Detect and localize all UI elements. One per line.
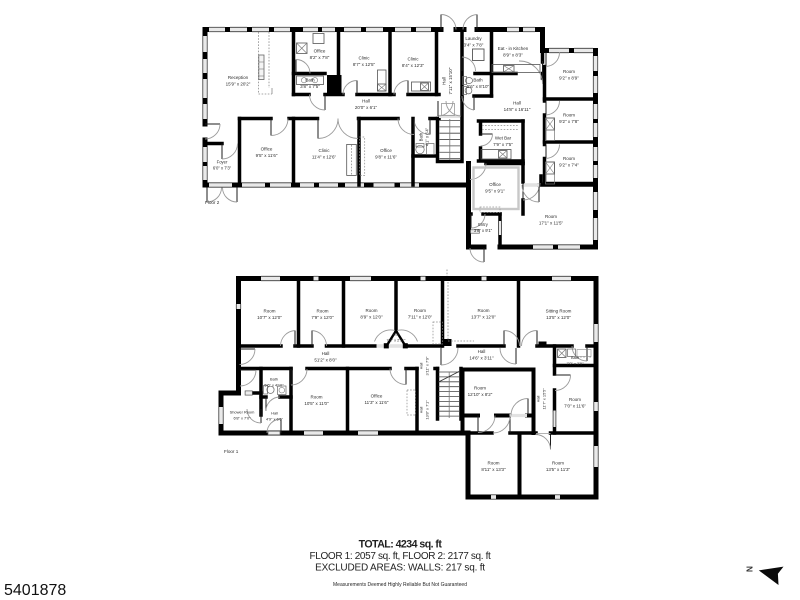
svg-text:Bath: Bath <box>418 132 423 141</box>
svg-text:13'7" x 12'0": 13'7" x 12'0" <box>471 314 496 319</box>
svg-text:Room: Room <box>414 308 426 313</box>
svg-text:Hall: Hall <box>478 349 486 354</box>
svg-text:5'6" x 4'10": 5'6" x 4'10" <box>264 382 284 387</box>
svg-text:9'2" x 8'9": 9'2" x 8'9" <box>559 75 579 80</box>
svg-text:7'9" x 12'0": 7'9" x 12'0" <box>311 315 334 320</box>
svg-text:17'1" x 11'5": 17'1" x 11'5" <box>539 220 564 225</box>
svg-text:8'9" x 12'0": 8'9" x 12'0" <box>360 314 383 319</box>
svg-text:Shower Room: Shower Room <box>230 409 255 414</box>
svg-text:9'2" x 7'4": 9'2" x 7'4" <box>559 162 579 167</box>
svg-text:Room: Room <box>569 397 581 402</box>
svg-text:Hall: Hall <box>513 100 521 105</box>
svg-text:7'11" x 12'0": 7'11" x 12'0" <box>408 314 433 319</box>
svg-text:Room: Room <box>552 460 564 465</box>
svg-text:8'7" x 12'5": 8'7" x 12'5" <box>353 62 376 67</box>
svg-text:Floor 2: Floor 2 <box>205 200 220 205</box>
svg-text:13'8" x 7'1": 13'8" x 7'1" <box>424 400 429 420</box>
svg-text:11'7" x 15'5": 11'7" x 15'5" <box>541 388 546 410</box>
svg-text:14'6" x 3'11": 14'6" x 3'11" <box>469 355 494 360</box>
svg-text:8'2" x 7'8": 8'2" x 7'8" <box>310 55 330 60</box>
svg-text:Room: Room <box>477 308 489 313</box>
svg-text:Room: Room <box>263 308 275 313</box>
svg-text:Bath: Bath <box>305 77 315 82</box>
svg-text:Hall: Hall <box>362 98 370 103</box>
svg-text:Clinic: Clinic <box>318 148 330 153</box>
svg-text:7'0" x 11'6": 7'0" x 11'6" <box>564 403 586 408</box>
svg-text:9'5" x 11'6": 9'5" x 11'6" <box>256 153 278 158</box>
svg-text:3'4" x 7'8": 3'4" x 7'8" <box>464 42 484 47</box>
svg-text:Laundry: Laundry <box>465 36 482 41</box>
svg-text:51'2" x 8'0": 51'2" x 8'0" <box>314 357 337 362</box>
svg-text:Sitting Room: Sitting Room <box>546 308 572 313</box>
svg-text:Foyer: Foyer <box>217 159 228 164</box>
svg-text:8'4" x 12'3": 8'4" x 12'3" <box>402 63 425 68</box>
svg-text:Office: Office <box>371 393 383 398</box>
svg-text:14'8" x 16'11": 14'8" x 16'11" <box>504 107 531 112</box>
svg-text:9'8" x 11'6": 9'8" x 11'6" <box>375 154 397 159</box>
svg-text:3'8" x 9'1": 3'8" x 9'1" <box>474 228 493 233</box>
svg-text:4'9" x 6'6": 4'9" x 6'6" <box>266 416 284 421</box>
svg-text:Office: Office <box>380 148 392 153</box>
svg-text:Clinic: Clinic <box>358 55 370 60</box>
svg-text:Bath: Bath <box>270 376 278 381</box>
svg-text:8'11" x 13'3": 8'11" x 13'3" <box>481 467 506 472</box>
svg-text:20'0" x 6'1": 20'0" x 6'1" <box>355 105 378 110</box>
svg-text:7'11" x 15'10": 7'11" x 15'10" <box>448 67 453 94</box>
svg-text:7'0" x 3'5": 7'0" x 3'5" <box>566 361 584 366</box>
svg-text:10'7" x 12'0": 10'7" x 12'0" <box>257 315 282 320</box>
svg-text:6'0" x 7'3": 6'0" x 7'3" <box>213 166 232 171</box>
svg-text:9'2" x 7'8": 9'2" x 7'8" <box>559 119 579 124</box>
svg-text:Hall: Hall <box>393 331 400 336</box>
svg-text:Measurements Deemed Highly Rel: Measurements Deemed Highly Reliable But … <box>333 582 467 588</box>
svg-text:13'5" x 11'3": 13'5" x 11'3" <box>546 467 571 472</box>
svg-text:Room: Room <box>316 308 328 313</box>
svg-text:Eat - in Kitchen: Eat - in Kitchen <box>498 46 529 51</box>
svg-text:Entry: Entry <box>478 222 489 227</box>
svg-text:Room: Room <box>545 214 557 219</box>
svg-text:7'9" x 7'5": 7'9" x 7'5" <box>493 142 513 147</box>
svg-text:FLOOR 1: 2057 sq. ft, FLOOR 2:: FLOOR 1: 2057 sq. ft, FLOOR 2: 2177 sq. … <box>310 551 492 562</box>
svg-text:Hall: Hall <box>535 396 540 403</box>
svg-text:Clinic: Clinic <box>407 56 419 61</box>
svg-text:Room: Room <box>474 385 486 390</box>
svg-text:Room: Room <box>563 69 575 74</box>
svg-text:12'10" x 8'2": 12'10" x 8'2" <box>468 392 493 397</box>
svg-text:9'5" x 9'1": 9'5" x 9'1" <box>485 188 505 193</box>
svg-text:7'8" x 2'11": 7'8" x 2'11" <box>387 337 407 342</box>
svg-text:Floor 1: Floor 1 <box>224 449 239 454</box>
svg-text:5'6" x 8'10": 5'6" x 8'10" <box>467 84 490 89</box>
svg-text:Office: Office <box>314 48 326 53</box>
svg-text:Bath: Bath <box>473 77 483 82</box>
svg-text:11'3" x 11'6": 11'3" x 11'6" <box>364 400 388 405</box>
svg-text:Office: Office <box>489 182 501 187</box>
svg-text:Bath: Bath <box>571 355 579 360</box>
svg-text:Hall: Hall <box>322 351 330 356</box>
svg-text:10'5" x 11'0": 10'5" x 11'0" <box>304 401 329 406</box>
svg-text:6'8" x 7'0": 6'8" x 7'0" <box>233 415 251 420</box>
svg-text:11'4" x 12'6": 11'4" x 12'6" <box>312 154 337 159</box>
svg-text:Hall: Hall <box>271 410 278 415</box>
svg-text:Office: Office <box>261 146 273 151</box>
svg-text:Hall: Hall <box>418 407 423 414</box>
svg-text:Hall: Hall <box>418 363 423 370</box>
svg-text:3'8" x 7'5": 3'8" x 7'5" <box>300 84 320 89</box>
svg-text:N: N <box>745 566 755 572</box>
svg-text:5401878: 5401878 <box>4 582 66 599</box>
svg-text:Reception: Reception <box>228 75 249 80</box>
svg-text:Room: Room <box>563 156 575 161</box>
svg-text:Room: Room <box>563 112 575 117</box>
svg-text:Wet Bar: Wet Bar <box>495 135 512 140</box>
svg-text:15'9" x 20'2": 15'9" x 20'2" <box>226 81 251 86</box>
svg-text:TOTAL: 4234 sq. ft: TOTAL: 4234 sq. ft <box>359 539 443 551</box>
svg-text:EXCLUDED AREAS: WALLS: 217 sq.: EXCLUDED AREAS: WALLS: 217 sq. ft <box>315 563 485 574</box>
svg-text:Room: Room <box>310 394 322 399</box>
svg-text:Hall: Hall <box>441 77 446 85</box>
svg-text:Room: Room <box>365 308 377 313</box>
svg-text:13'5" x 12'0": 13'5" x 12'0" <box>546 315 571 320</box>
svg-text:8'9" x 8'3": 8'9" x 8'3" <box>503 52 523 57</box>
svg-text:4'1" x 6'4": 4'1" x 6'4" <box>425 127 430 146</box>
svg-text:Room: Room <box>487 460 499 465</box>
svg-text:3'11" x 7'9": 3'11" x 7'9" <box>424 356 429 376</box>
